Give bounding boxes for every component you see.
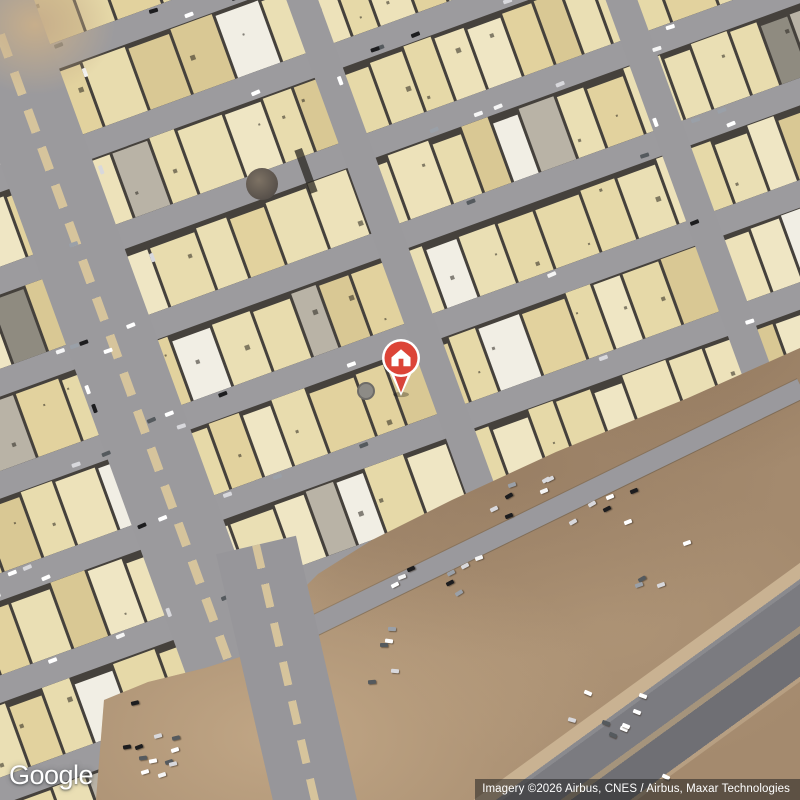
map-car	[569, 519, 578, 526]
map-car	[603, 506, 612, 513]
map-car	[624, 519, 633, 526]
map-car	[632, 709, 641, 716]
map-car	[390, 581, 399, 588]
map-car	[447, 569, 456, 576]
map-car	[505, 492, 514, 500]
google-logo[interactable]: Google	[9, 760, 93, 791]
map-car	[507, 481, 516, 487]
map-car	[149, 758, 158, 763]
location-marker[interactable]	[378, 338, 424, 398]
map-car	[397, 574, 406, 581]
map-car	[638, 693, 647, 700]
map-car	[634, 582, 643, 588]
map-car	[609, 732, 618, 739]
map-car	[568, 717, 577, 723]
map-car	[141, 769, 150, 775]
map-car	[504, 513, 513, 520]
map-car	[454, 589, 463, 597]
map-car	[446, 579, 455, 586]
map-car	[367, 679, 375, 684]
map-car	[135, 744, 144, 751]
map-car	[540, 488, 549, 495]
map-car	[158, 771, 167, 777]
map-car	[583, 690, 592, 697]
map-car	[388, 627, 396, 631]
map-car	[460, 563, 469, 570]
map-attribution: Imagery ©2026 Airbus, CNES / Airbus, Max…	[475, 779, 800, 800]
map-car	[587, 500, 596, 507]
map-car	[138, 755, 146, 760]
map-car	[630, 488, 639, 495]
map-canvas[interactable]: Google Imagery ©2026 Airbus, CNES / Airb…	[0, 0, 800, 800]
map-car	[131, 700, 140, 706]
map-car	[123, 744, 132, 749]
map-car	[407, 566, 416, 573]
map-car	[602, 720, 611, 726]
map-car	[154, 733, 163, 739]
map-car	[682, 540, 691, 546]
map-car	[391, 669, 399, 674]
map-car	[168, 761, 177, 767]
map-car	[170, 746, 179, 752]
map-car	[489, 505, 498, 512]
map-car	[606, 494, 615, 501]
map-car	[172, 735, 181, 741]
map-car	[380, 643, 388, 647]
map-car	[657, 582, 666, 588]
map-car	[474, 554, 483, 560]
desert-vehicles-layer	[0, 0, 800, 800]
